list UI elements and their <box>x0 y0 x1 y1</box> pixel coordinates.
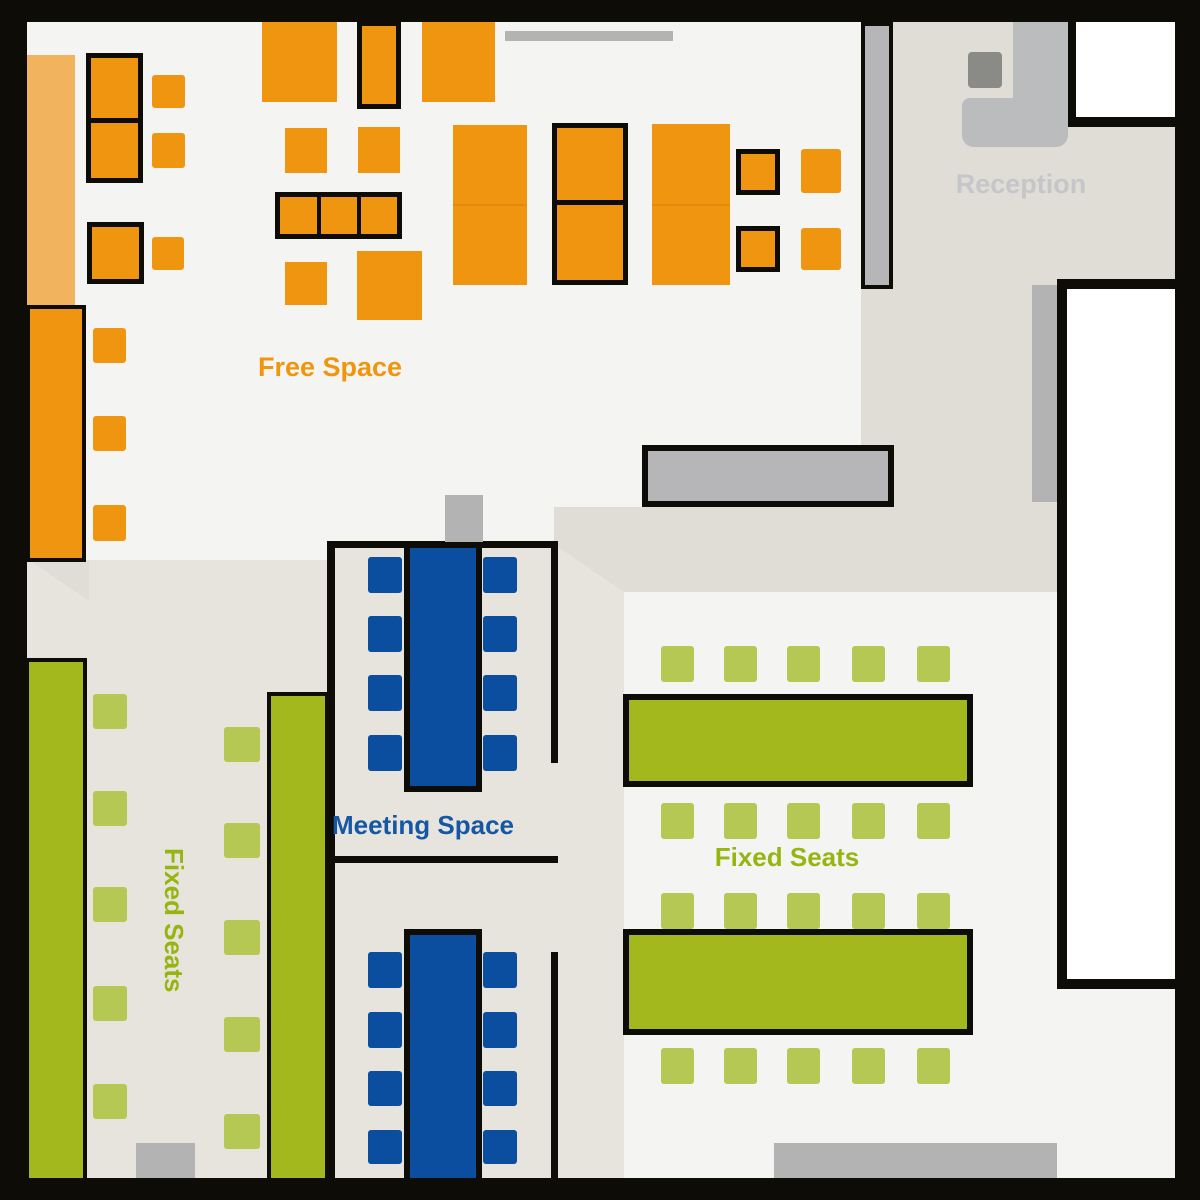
chair <box>852 1048 885 1084</box>
outer-wall-top <box>0 0 1200 22</box>
chair <box>483 1130 517 1164</box>
chair <box>368 1130 402 1164</box>
chair <box>917 1048 950 1084</box>
desk <box>357 251 422 320</box>
fixed-seats-left-label: Fixed Seats <box>158 845 189 995</box>
chair <box>661 893 694 929</box>
chair <box>801 228 841 270</box>
reception-chair <box>968 52 1002 88</box>
chair <box>152 75 185 108</box>
desk <box>741 154 775 190</box>
outer-wall-left <box>0 0 27 1200</box>
chair <box>368 557 402 593</box>
desk <box>362 26 396 104</box>
desk <box>358 127 400 173</box>
chair <box>368 735 402 771</box>
meeting-wall-right-lower <box>551 952 558 1178</box>
chair <box>661 1048 694 1084</box>
chair <box>801 149 841 193</box>
chair <box>787 893 820 929</box>
fixed-table <box>29 662 83 1178</box>
chair <box>93 887 127 922</box>
free-space-counter <box>30 309 82 558</box>
chair <box>724 803 757 839</box>
chair <box>224 920 260 955</box>
chair <box>93 1084 127 1119</box>
desk <box>557 128 623 200</box>
chair <box>483 675 517 711</box>
desk <box>422 22 495 102</box>
desk <box>321 197 357 234</box>
desk <box>92 227 139 279</box>
chair <box>852 893 885 929</box>
chair <box>368 952 402 988</box>
reception-desk <box>1013 22 1068 108</box>
reception-label: Reception <box>931 168 1111 200</box>
desk <box>280 197 317 234</box>
chair <box>224 823 260 858</box>
desk-seam <box>652 204 730 206</box>
chair <box>483 952 517 988</box>
chair <box>483 616 517 652</box>
chair <box>724 646 757 682</box>
free-space-counter-pale <box>27 55 75 305</box>
chair <box>93 986 127 1021</box>
meeting-space-label: Meeting Space <box>313 810 533 841</box>
chair <box>368 675 402 711</box>
chair <box>224 1017 260 1052</box>
chair <box>852 646 885 682</box>
chair <box>483 557 517 593</box>
chair <box>368 1071 402 1106</box>
chair <box>917 803 950 839</box>
desk-seam <box>453 204 527 206</box>
chair <box>661 803 694 839</box>
chair <box>483 735 517 771</box>
chair <box>93 505 126 541</box>
chair <box>224 727 260 762</box>
meeting-table <box>410 548 476 786</box>
chair <box>852 803 885 839</box>
chair <box>661 646 694 682</box>
chair <box>483 1071 517 1106</box>
door-top <box>505 31 673 41</box>
fixed-table <box>629 935 967 1029</box>
chair <box>93 416 126 451</box>
chair <box>224 1114 260 1149</box>
chair <box>724 1048 757 1084</box>
desk <box>262 22 337 102</box>
free-space-label: Free Space <box>235 351 425 383</box>
chair <box>917 646 950 682</box>
chair <box>152 133 185 168</box>
chair <box>724 893 757 929</box>
door-meeting-room <box>445 495 483 542</box>
chair <box>787 803 820 839</box>
room <box>1076 22 1176 117</box>
counter <box>648 451 888 501</box>
meeting-table <box>410 935 476 1178</box>
desk <box>285 262 327 305</box>
chair <box>93 328 126 363</box>
chair <box>787 646 820 682</box>
fixed-seats-right-label: Fixed Seats <box>682 842 892 873</box>
meeting-wall-middle <box>331 856 558 863</box>
outer-wall-right <box>1175 0 1200 1200</box>
desk <box>285 128 327 173</box>
desk <box>741 231 775 267</box>
fixed-table <box>271 696 325 1178</box>
chair <box>368 1012 402 1048</box>
desk <box>91 123 138 178</box>
chair <box>787 1048 820 1084</box>
fixed-table <box>629 700 967 781</box>
meeting-wall-right-upper <box>551 541 558 763</box>
desk <box>361 197 397 234</box>
door-bottom-left <box>136 1143 195 1178</box>
chair <box>917 893 950 929</box>
door-bottom-right <box>774 1143 1057 1178</box>
reception-desk <box>962 98 1068 147</box>
door-strip-right-room <box>1032 285 1060 502</box>
desk <box>557 205 623 280</box>
chair <box>93 791 127 826</box>
chair <box>93 694 127 729</box>
chair <box>368 616 402 652</box>
partition <box>865 26 889 285</box>
outer-wall-bottom <box>0 1178 1200 1200</box>
office-floor-plan: Free Space Reception Meeting Space Fixed… <box>0 0 1200 1200</box>
room <box>1067 289 1175 979</box>
chair <box>483 1012 517 1048</box>
chair <box>152 237 184 270</box>
desk <box>91 58 138 118</box>
